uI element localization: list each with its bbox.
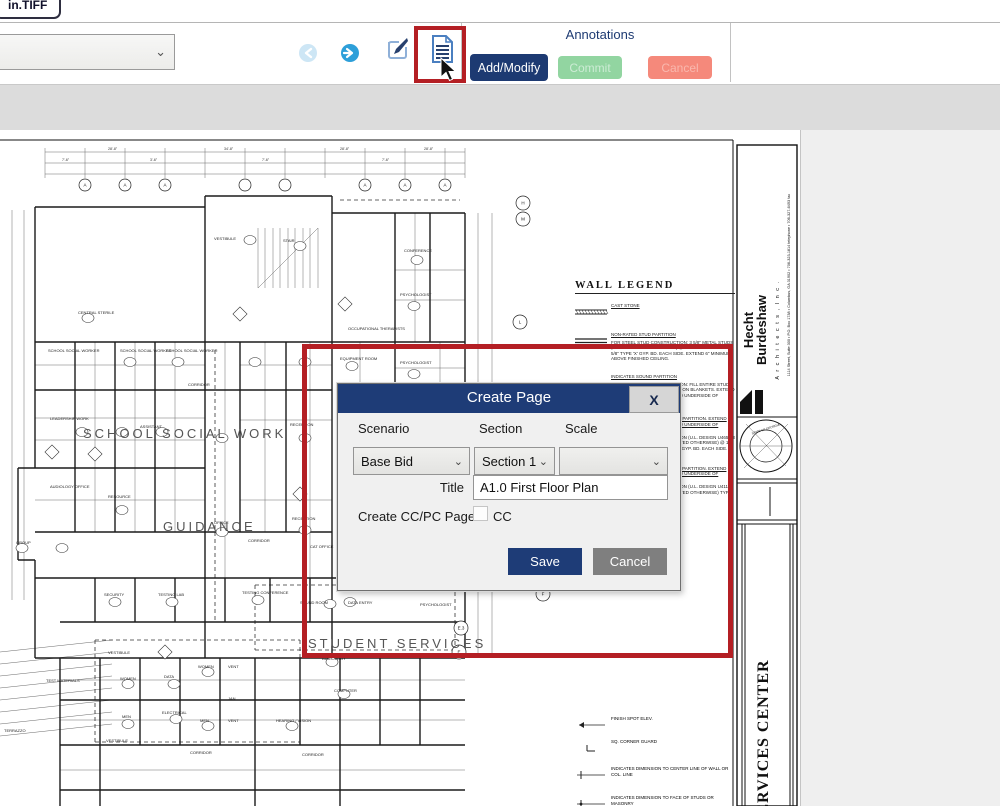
room-tag bbox=[244, 236, 256, 245]
forward-arrow-button[interactable] bbox=[341, 44, 359, 62]
room-label: CORRIDOR bbox=[248, 538, 270, 543]
dimension-label: 34'-8" bbox=[224, 147, 234, 151]
page-select-dropdown[interactable]: ⌄ bbox=[0, 34, 175, 70]
room-label: MEN bbox=[122, 714, 131, 719]
room-label: RESOURCE bbox=[108, 494, 131, 499]
room-label: COMPUTER bbox=[334, 688, 357, 693]
room-label: JAN bbox=[228, 696, 236, 701]
close-button[interactable]: X bbox=[629, 386, 679, 413]
section-dropdown[interactable]: Section 1 ⌄ bbox=[474, 447, 555, 475]
room-label: VENT bbox=[228, 664, 239, 669]
room-label: ELECTRICAL bbox=[162, 710, 187, 715]
room-tag bbox=[170, 715, 182, 724]
room-label: TEST MATERIALS bbox=[46, 678, 80, 683]
file-tab-label: in.TIFF bbox=[8, 0, 47, 12]
dimc-symbol bbox=[575, 770, 609, 780]
corner-symbol bbox=[575, 743, 609, 753]
dimension-label: 7'-6" bbox=[262, 158, 270, 162]
room-label: VESTIBULE bbox=[108, 650, 130, 655]
firm-subtitle: A r c h i t e c t s , I n c . bbox=[775, 280, 781, 379]
cc-checkbox[interactable] bbox=[473, 506, 488, 521]
room-tag bbox=[411, 256, 423, 265]
grid-bubble-label: A bbox=[123, 183, 126, 188]
room-label: WOMEN bbox=[120, 676, 136, 681]
chevron-down-icon: ⌄ bbox=[155, 47, 166, 57]
legend-item-heading: NON-RATED STUD PARTITION bbox=[611, 332, 735, 338]
room-label: HEARING / VISION bbox=[276, 718, 311, 723]
room-label: CONFERENCE bbox=[404, 248, 432, 253]
grid-bubble-label: A bbox=[163, 183, 166, 188]
scenario-label: Scenario bbox=[358, 421, 409, 436]
section-value: Section 1 bbox=[482, 454, 536, 469]
mouse-cursor bbox=[439, 57, 459, 83]
firm-address: 1114 Street, Suite 300 • P.O. Box 1738 •… bbox=[787, 194, 791, 377]
grid-diamond bbox=[233, 307, 247, 321]
annotations-group-label: Annotations bbox=[530, 27, 670, 42]
create-page-dialog: Create Page X Scenario Section Scale Bas… bbox=[337, 383, 681, 591]
chevron-down-icon: ⌄ bbox=[539, 455, 548, 468]
scenario-value: Base Bid bbox=[361, 454, 413, 469]
room-label: PSYCHOLOGIST bbox=[400, 292, 432, 297]
room-label: CENTRAL STERILE bbox=[78, 310, 115, 315]
symbol-legend: FINISH SPOT ELEV.SQ. CORNER GUARDINDICAT… bbox=[575, 716, 735, 806]
section-label: Section bbox=[479, 421, 522, 436]
file-tab[interactable]: in.TIFF bbox=[0, 0, 61, 19]
room-label: VESTIBULE bbox=[214, 236, 236, 241]
save-button[interactable]: Save bbox=[508, 548, 582, 575]
dimension-label: 28'-8" bbox=[340, 147, 350, 151]
room-tag bbox=[122, 720, 134, 729]
room-tag bbox=[294, 242, 306, 251]
cc-checkbox-label: CC bbox=[493, 509, 512, 524]
elev-symbol bbox=[575, 720, 609, 730]
grid-diamond bbox=[88, 447, 102, 461]
drawing-viewer[interactable]: AAAAAAHMLKE.3EF28'-8"34'-8"28'-8"28'-8"7… bbox=[0, 130, 1000, 806]
grid-bubble-label: A bbox=[403, 183, 406, 188]
title-input[interactable]: A1.0 First Floor Plan bbox=[473, 475, 668, 500]
firm-name: Burdeshaw bbox=[754, 294, 769, 365]
room-tag bbox=[124, 358, 136, 367]
room-label: SCHOOL SOCIAL WORKER bbox=[166, 348, 218, 353]
room-label: TESTING CONFERENCE bbox=[242, 590, 289, 595]
grid-diamond bbox=[338, 297, 352, 311]
edit-annotation-button[interactable] bbox=[385, 35, 411, 62]
firm-logo-icon bbox=[740, 390, 752, 414]
room-label: AUDIOLOGY OFFICE bbox=[50, 484, 90, 489]
room-tag bbox=[56, 544, 68, 553]
room-label: SCHOOL SOCIAL WORKER bbox=[120, 348, 172, 353]
grid-diamond bbox=[158, 645, 172, 659]
room-tag bbox=[109, 598, 121, 607]
dimension-label: 7'-6" bbox=[382, 158, 390, 162]
room-label: GROUP bbox=[16, 540, 31, 545]
room-label: CORRIDOR bbox=[302, 752, 324, 757]
chevron-down-icon: ⌄ bbox=[652, 455, 661, 468]
room-label: OCCUPATIONAL THERAPISTS bbox=[348, 326, 405, 331]
room-label: MEN bbox=[200, 718, 209, 723]
room-label: TERRAZZO bbox=[4, 728, 26, 733]
room-tag bbox=[166, 598, 178, 607]
scale-label: Scale bbox=[565, 421, 598, 436]
legend-item-heading: CAST STONE bbox=[611, 303, 735, 309]
chevron-down-icon: ⌄ bbox=[454, 455, 463, 468]
commit-button[interactable]: Commit bbox=[558, 56, 622, 79]
cc-page-label: Create CC/PC Page bbox=[358, 509, 475, 524]
toolbar-group-divider bbox=[730, 23, 731, 82]
room-tag bbox=[116, 506, 128, 515]
dimension-label: 28'-8" bbox=[108, 147, 118, 151]
room-tag bbox=[172, 358, 184, 367]
room-tag bbox=[408, 302, 420, 311]
title-value: A1.0 First Floor Plan bbox=[480, 480, 599, 495]
dimf-symbol bbox=[575, 799, 609, 806]
toolbar-divider-top bbox=[0, 22, 1000, 23]
back-arrow-button[interactable] bbox=[299, 44, 317, 62]
room-label: CORRIDOR bbox=[188, 382, 210, 387]
wall-legend-title: WALL LEGEND bbox=[575, 280, 735, 294]
toolbar-spacer-band bbox=[0, 84, 1000, 133]
room-label: STAIR bbox=[283, 238, 295, 243]
area-label: SCHOOL SOCIAL WORK bbox=[83, 426, 286, 441]
dimension-label: 3'-6" bbox=[150, 158, 158, 162]
room-label: LEADERSHIP WORK bbox=[50, 416, 89, 421]
room-label: VESTIBULE bbox=[106, 738, 128, 743]
room-label: WOMEN bbox=[198, 664, 214, 669]
grid-bubble bbox=[239, 179, 251, 191]
title-label: Title bbox=[408, 480, 464, 495]
symbol-legend-item: INDICATES DIMENSION TO CENTER LINE OF WA… bbox=[575, 766, 735, 785]
area-label: GUIDANCE bbox=[163, 519, 256, 534]
grid-bubble-label: A bbox=[363, 183, 366, 188]
cancel-button-dialog[interactable]: Cancel bbox=[593, 548, 667, 575]
room-tag bbox=[249, 358, 261, 367]
add-modify-button[interactable]: Add/Modify bbox=[470, 54, 548, 81]
grid-bubble-label: M bbox=[521, 217, 525, 222]
grid-diamond bbox=[45, 445, 59, 459]
room-label: VENT bbox=[228, 718, 239, 723]
grid-bubble-label: A bbox=[443, 183, 446, 188]
firm-logo-icon bbox=[755, 390, 763, 414]
room-label: CORRIDOR bbox=[190, 750, 212, 755]
room-label: TESTING LAB bbox=[158, 592, 184, 597]
scale-dropdown[interactable]: ⌄ bbox=[559, 447, 668, 475]
grid-bubble-label: H bbox=[521, 201, 524, 206]
legend-item: CAST STONE bbox=[575, 303, 735, 322]
room-tag bbox=[168, 680, 180, 689]
room-label: DATA bbox=[164, 674, 174, 679]
scenario-dropdown[interactable]: Base Bid ⌄ bbox=[353, 447, 470, 475]
room-label: SECURITY bbox=[104, 592, 125, 597]
symbol-legend-item: INDICATES DIMENSION TO FACE OF STUDS OR … bbox=[575, 795, 735, 806]
symbol-legend-item: FINISH SPOT ELEV. bbox=[575, 716, 735, 735]
project-name: SERVICES CENTER bbox=[755, 659, 772, 806]
grid-bubble bbox=[279, 179, 291, 191]
room-label: SCHOOL SOCIAL WORKER bbox=[48, 348, 100, 353]
hatchbar-symbol bbox=[575, 307, 609, 317]
dimension-label: 28'-8" bbox=[424, 147, 434, 151]
cancel-button-toolbar[interactable]: Cancel bbox=[648, 56, 712, 79]
room-tag bbox=[252, 596, 264, 605]
grid-bubble-label: A bbox=[83, 183, 86, 188]
symbol-legend-item: SQ. CORNER GUARD bbox=[575, 739, 735, 758]
dimension-label: 7'-6" bbox=[62, 158, 70, 162]
